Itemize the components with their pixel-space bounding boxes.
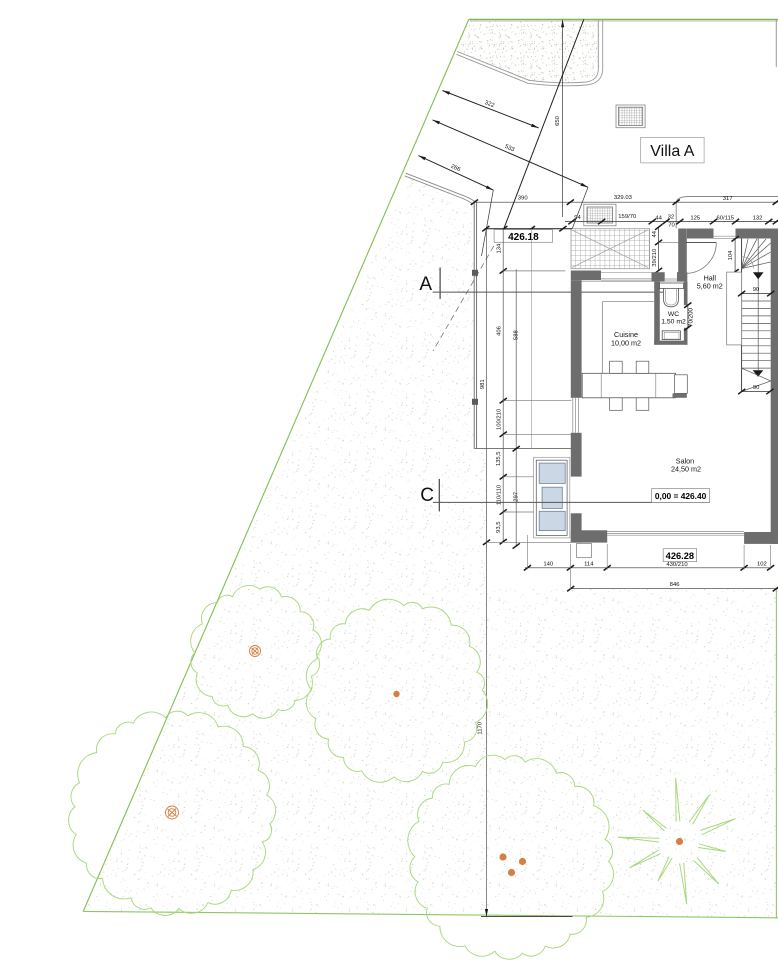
svg-text:60/115: 60/115 — [717, 215, 735, 221]
svg-text:10,00 m2: 10,00 m2 — [611, 339, 641, 348]
svg-text:426.18: 426.18 — [508, 232, 539, 243]
svg-text:132: 132 — [753, 215, 763, 221]
svg-text:39/210: 39/210 — [652, 248, 658, 267]
svg-text:5,60 m2: 5,60 m2 — [697, 282, 723, 291]
svg-text:650: 650 — [555, 115, 561, 126]
svg-text:114: 114 — [584, 561, 594, 567]
svg-text:100/210: 100/210 — [496, 408, 502, 430]
svg-text:317: 317 — [723, 196, 733, 202]
svg-text:159/70: 159/70 — [618, 214, 637, 220]
svg-text:125: 125 — [690, 215, 701, 221]
svg-text:1,50 m2: 1,50 m2 — [661, 319, 686, 326]
svg-text:426.28: 426.28 — [666, 551, 694, 561]
svg-text:44: 44 — [652, 230, 658, 237]
svg-text:588: 588 — [514, 329, 520, 340]
svg-text:44: 44 — [655, 216, 662, 222]
svg-text:1170: 1170 — [478, 721, 484, 734]
svg-text:0,00 = 426.40: 0,00 = 426.40 — [655, 491, 707, 501]
svg-text:32: 32 — [668, 214, 675, 220]
svg-text:WC: WC — [668, 311, 679, 318]
svg-text:134: 134 — [496, 243, 502, 254]
svg-text:135,5: 135,5 — [496, 451, 502, 466]
svg-text:329.03: 329.03 — [614, 195, 633, 201]
svg-text:981: 981 — [480, 379, 486, 389]
svg-text:846: 846 — [670, 582, 681, 588]
svg-text:70/200: 70/200 — [687, 307, 694, 326]
svg-text:A: A — [419, 274, 432, 295]
svg-text:C: C — [420, 485, 434, 506]
svg-text:Villa A: Villa A — [650, 143, 695, 160]
svg-text:102: 102 — [757, 561, 767, 567]
svg-text:93,5: 93,5 — [496, 521, 502, 533]
svg-text:406: 406 — [496, 325, 502, 336]
svg-text:90: 90 — [753, 287, 760, 293]
svg-text:24,50 m2: 24,50 m2 — [671, 465, 701, 474]
svg-text:70: 70 — [668, 223, 675, 229]
svg-text:104: 104 — [728, 250, 734, 261]
svg-text:390: 390 — [518, 196, 529, 202]
svg-text:430/210: 430/210 — [666, 562, 688, 568]
svg-text:297: 297 — [514, 492, 520, 502]
svg-text:140: 140 — [543, 561, 554, 567]
svg-text:90: 90 — [753, 385, 760, 391]
